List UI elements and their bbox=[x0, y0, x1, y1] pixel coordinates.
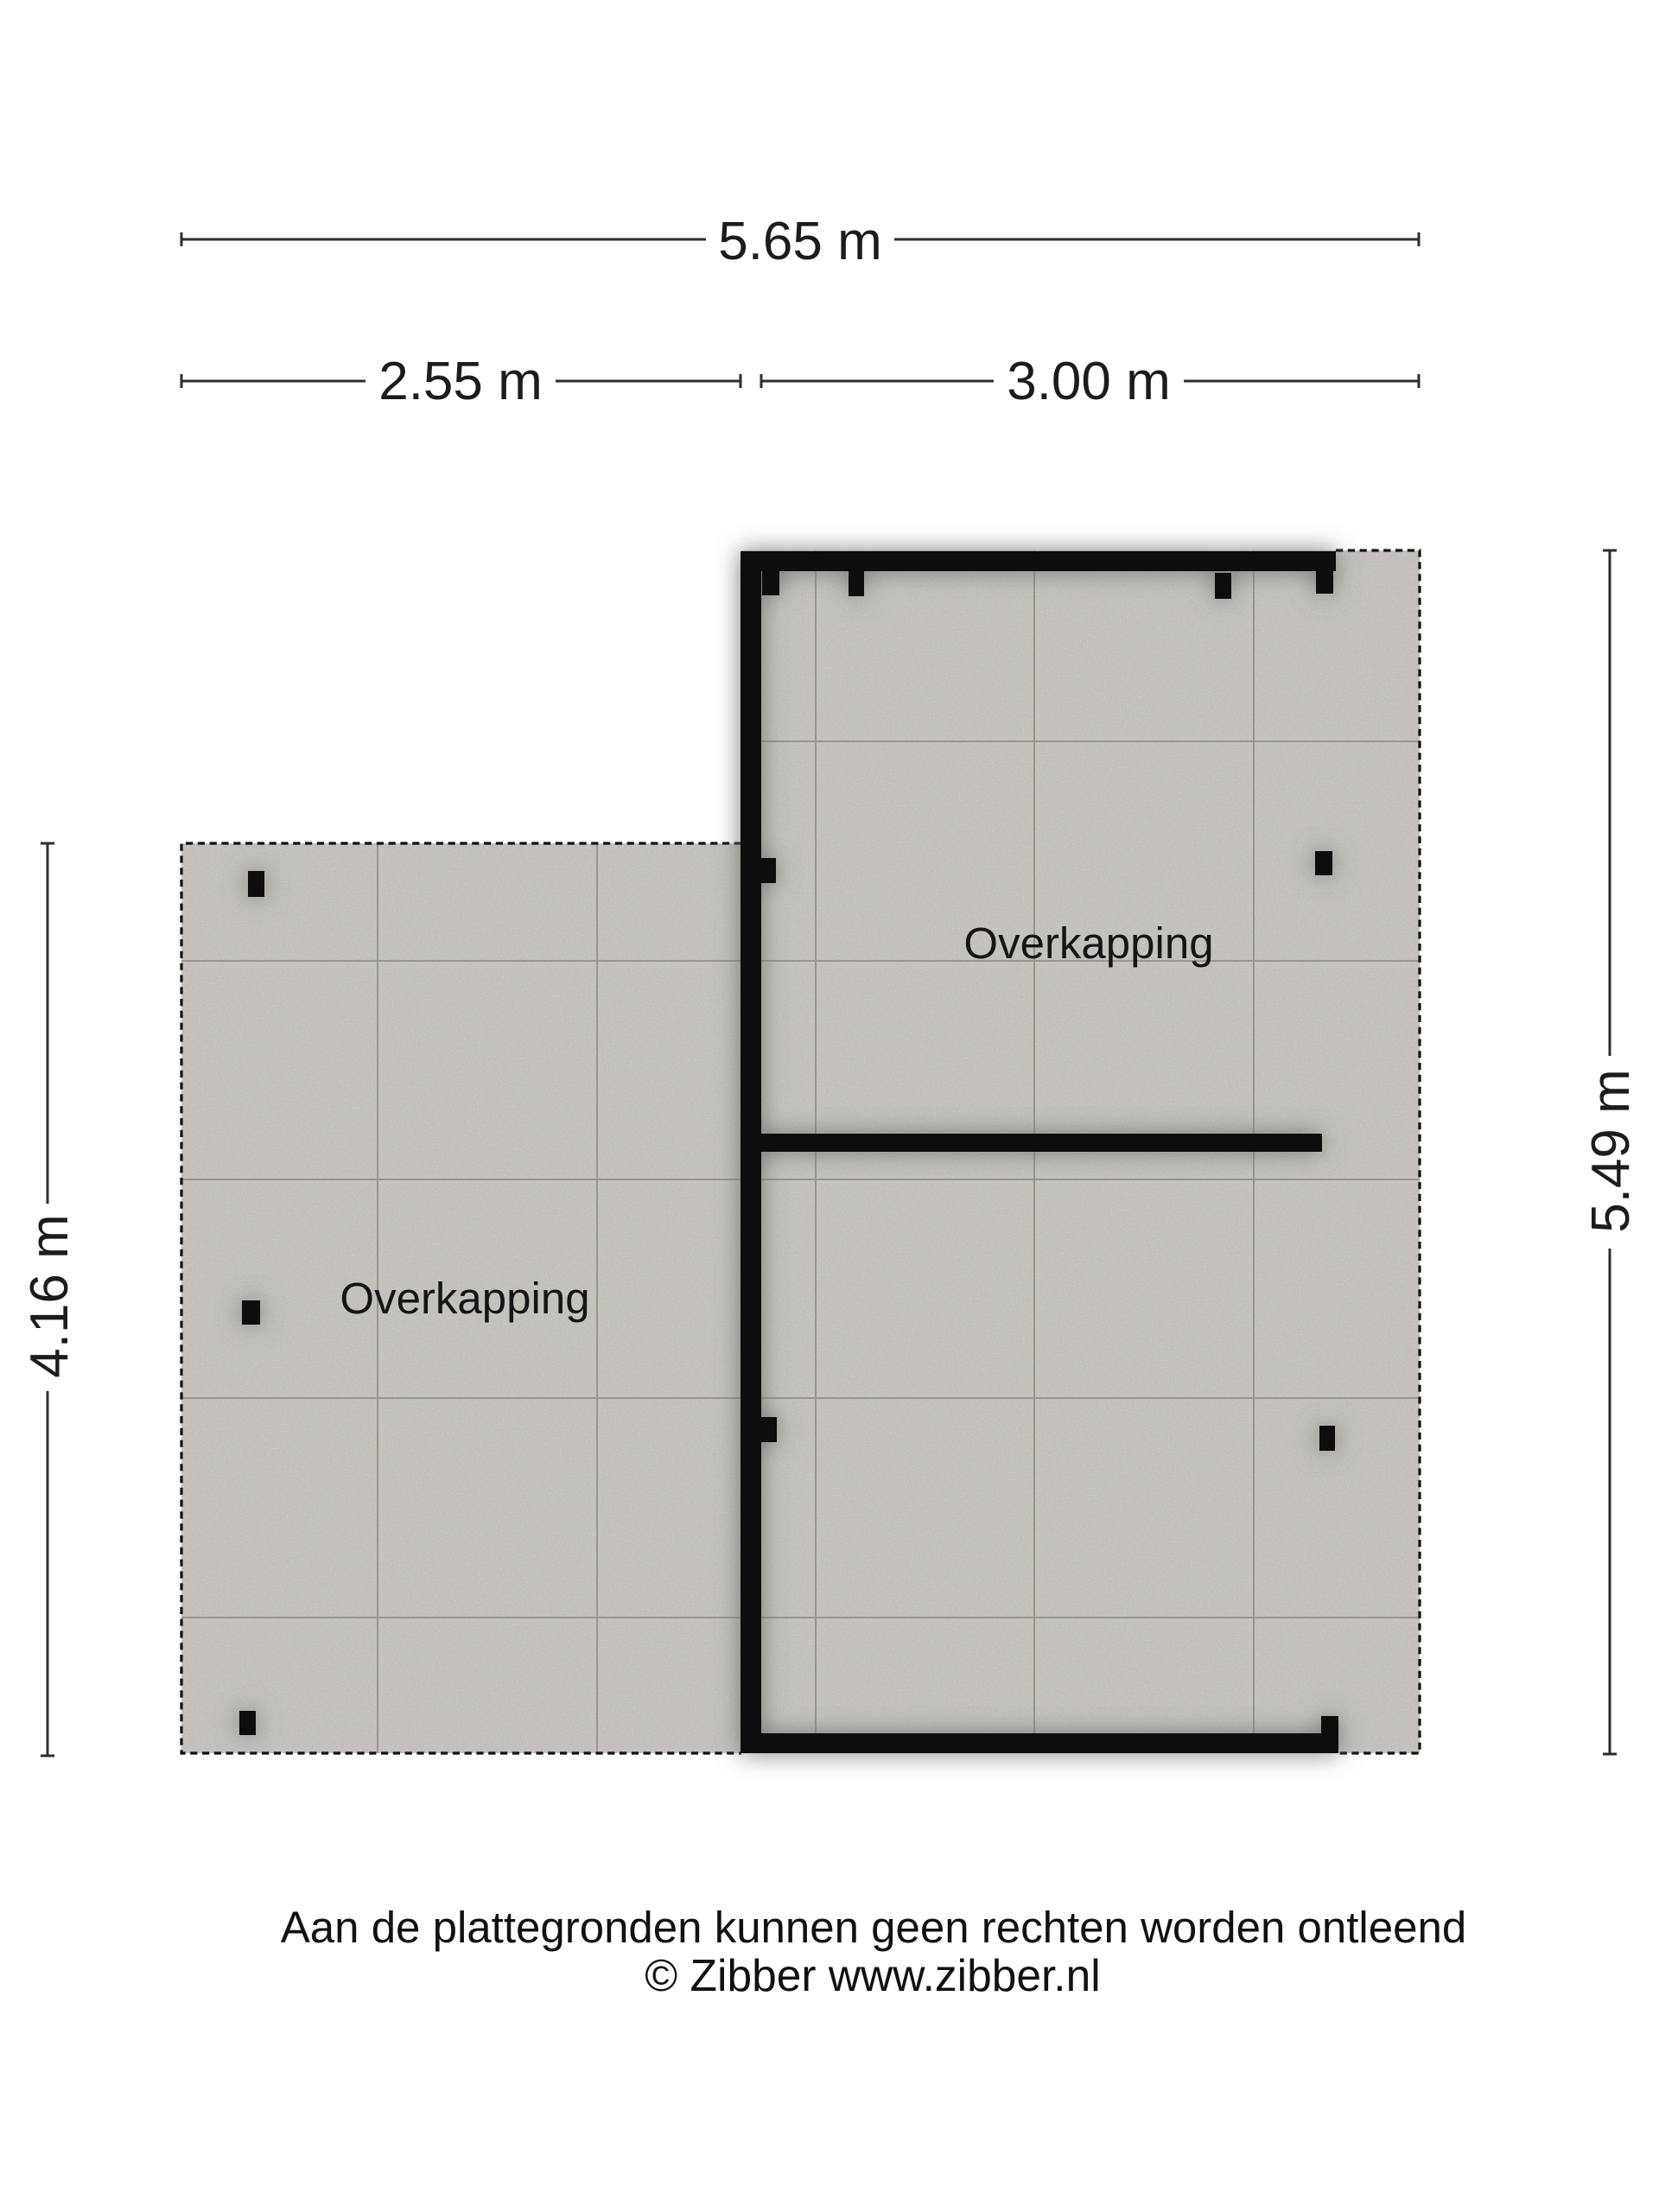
svg-text:Aan de plattegronden kunnen ge: Aan de plattegronden kunnen geen rechten… bbox=[281, 1903, 1466, 1952]
svg-text:3.00 m: 3.00 m bbox=[1007, 352, 1171, 411]
svg-text:Overkapping: Overkapping bbox=[963, 918, 1213, 968]
svg-text:© Zibber www.zibber.nl: © Zibber www.zibber.nl bbox=[645, 1950, 1100, 2000]
svg-text:4.16 m: 4.16 m bbox=[20, 1214, 79, 1378]
svg-text:5.49 m: 5.49 m bbox=[1581, 1069, 1641, 1233]
svg-text:5.65 m: 5.65 m bbox=[718, 212, 882, 271]
svg-text:2.55 m: 2.55 m bbox=[378, 352, 543, 411]
svg-text:Overkapping: Overkapping bbox=[340, 1274, 589, 1323]
